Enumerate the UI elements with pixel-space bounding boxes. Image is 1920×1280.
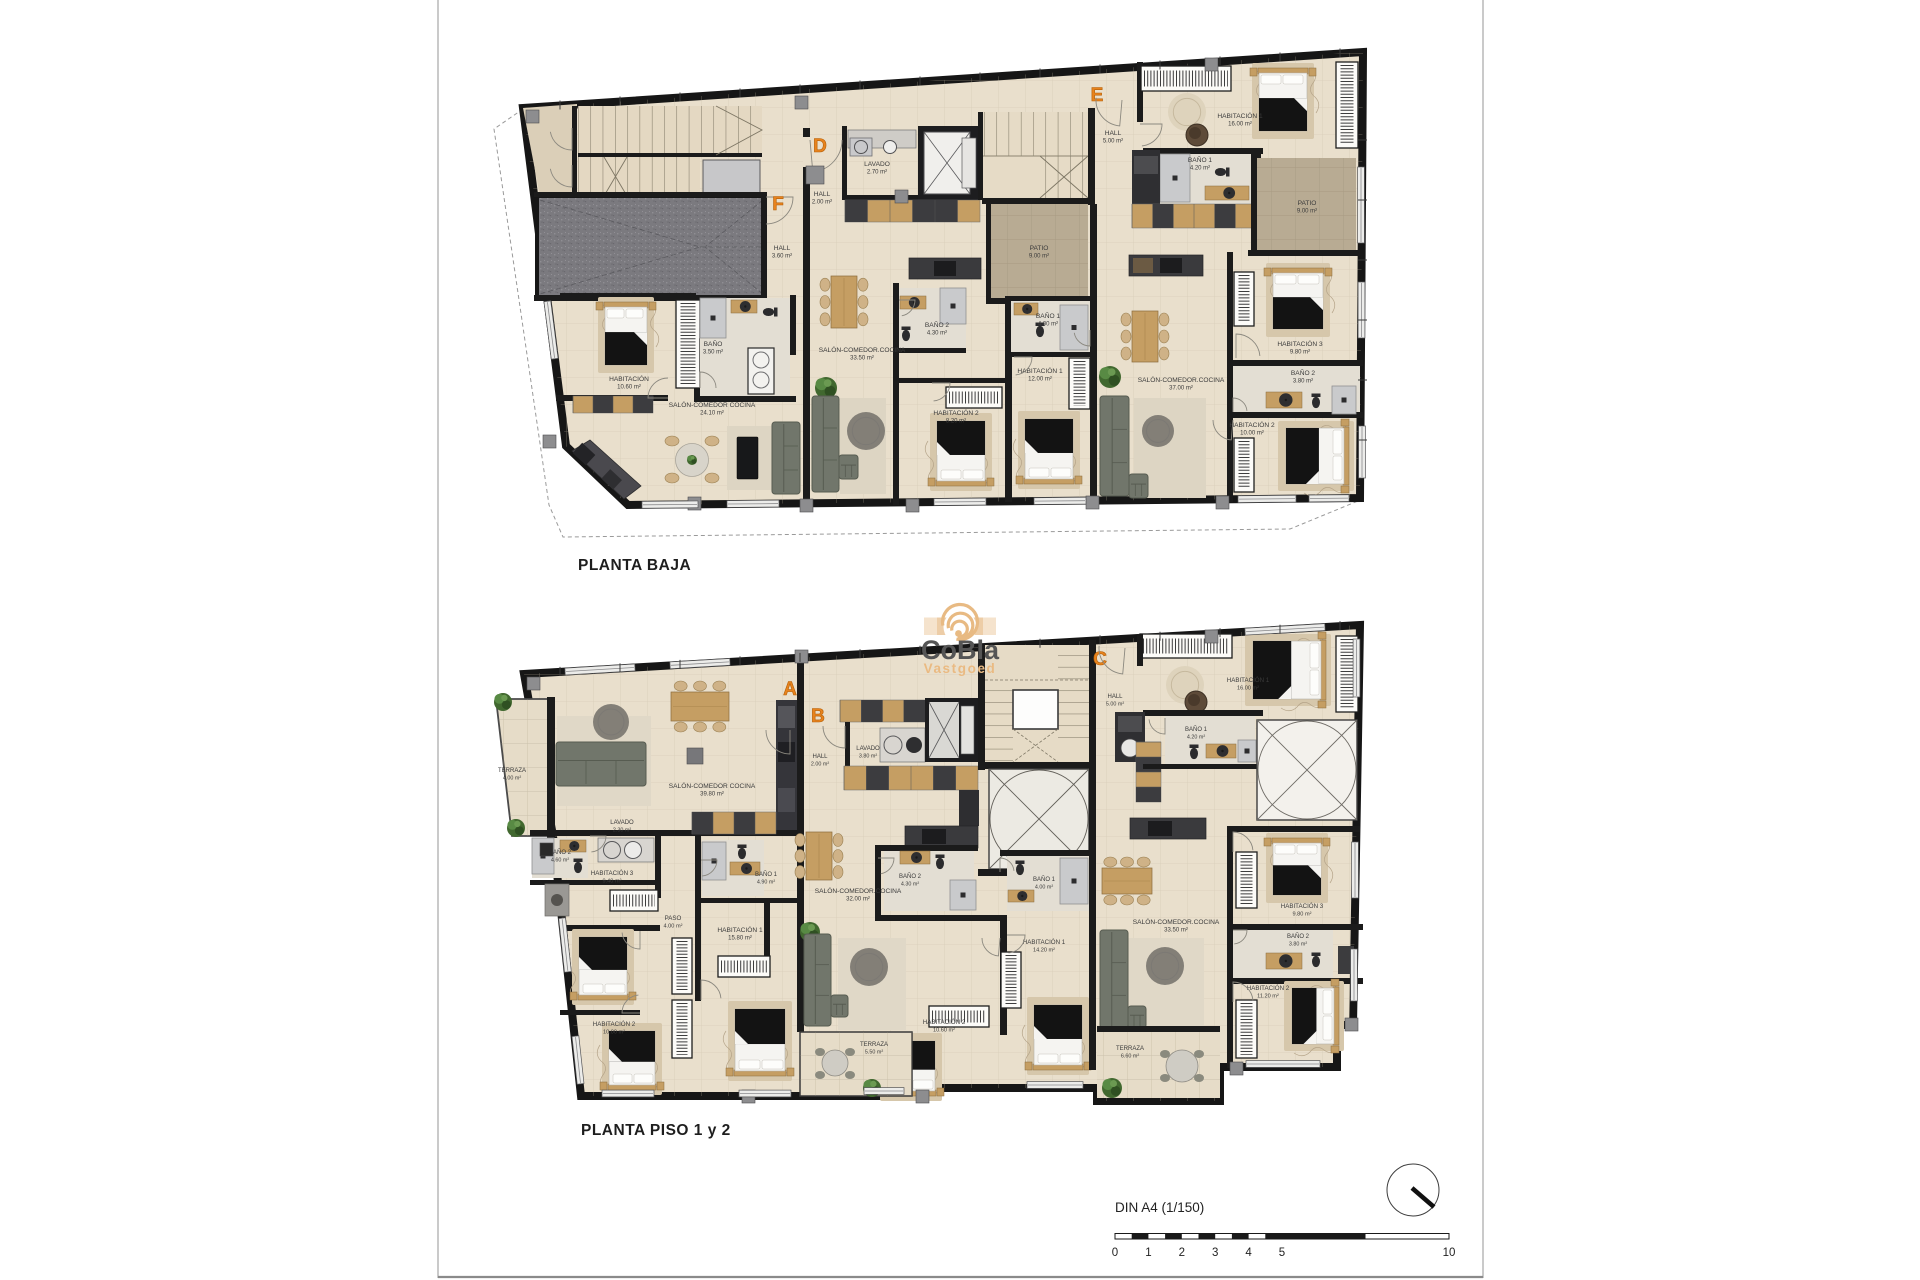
svg-text:BAÑO 2: BAÑO 2: [899, 873, 922, 880]
svg-text:3.80 m²: 3.80 m²: [1293, 379, 1313, 385]
svg-text:9.00 m²: 9.00 m²: [1297, 209, 1317, 215]
svg-text:PLANTA PISO 1 y 2: PLANTA PISO 1 y 2: [581, 1122, 731, 1139]
svg-text:33.50 m²: 33.50 m²: [1164, 928, 1188, 934]
svg-text:PATIO: PATIO: [1298, 200, 1317, 207]
svg-text:LAVADO: LAVADO: [864, 161, 890, 168]
svg-text:HALL: HALL: [812, 754, 828, 760]
svg-text:2.00 m²: 2.00 m²: [811, 762, 829, 768]
svg-text:14.20 m²: 14.20 m²: [1033, 948, 1055, 954]
svg-text:4.20 m²: 4.20 m²: [1190, 166, 1210, 172]
svg-text:5.00 m²: 5.00 m²: [1106, 702, 1124, 708]
svg-text:9.00 m²: 9.00 m²: [1029, 254, 1049, 260]
svg-text:HABITACIÓN 2: HABITACIÓN 2: [593, 1021, 636, 1028]
svg-text:SALÓN-COMEDOR.COCINA: SALÓN-COMEDOR.COCINA: [1133, 917, 1220, 926]
svg-text:TERRAZA: TERRAZA: [498, 768, 526, 774]
svg-text:4.30 m²: 4.30 m²: [927, 331, 947, 337]
svg-text:4.00 m²: 4.00 m²: [503, 776, 521, 782]
svg-text:4.30 m²: 4.30 m²: [901, 882, 919, 888]
svg-text:10.00 m²: 10.00 m²: [603, 1030, 625, 1036]
svg-text:HABITACIÓN 1: HABITACIÓN 1: [1217, 111, 1263, 120]
svg-text:LAVADO: LAVADO: [610, 820, 634, 826]
svg-text:9.80 m²: 9.80 m²: [1293, 912, 1312, 918]
svg-text:SALÓN-COMEDOR.COCINA: SALÓN-COMEDOR.COCINA: [1138, 375, 1225, 384]
svg-text:10.00 m²: 10.00 m²: [1240, 431, 1264, 437]
svg-text:4.60 m²: 4.60 m²: [551, 858, 569, 864]
svg-text:4.00 m²: 4.00 m²: [1035, 885, 1053, 891]
svg-text:BAÑO 1: BAÑO 1: [1185, 726, 1208, 733]
svg-text:BAÑO 1: BAÑO 1: [1188, 155, 1213, 164]
svg-text:C: C: [1093, 649, 1107, 670]
svg-text:24.10 m²: 24.10 m²: [700, 411, 724, 417]
svg-text:5.50 m²: 5.50 m²: [865, 1050, 883, 1056]
svg-text:9.80 m²: 9.80 m²: [1290, 350, 1310, 356]
svg-text:LAVADO: LAVADO: [856, 746, 880, 752]
svg-text:HABITACIÓN 3: HABITACIÓN 3: [591, 870, 634, 877]
svg-text:HALL: HALL: [1105, 130, 1122, 137]
svg-text:TERRAZA: TERRAZA: [860, 1042, 888, 1048]
svg-text:E: E: [1091, 85, 1104, 106]
svg-text:BAÑO 1: BAÑO 1: [1033, 876, 1056, 883]
svg-text:HABITACIÓN 3: HABITACIÓN 3: [1277, 339, 1323, 348]
svg-text:33.50 m²: 33.50 m²: [850, 356, 874, 362]
svg-text:B: B: [811, 706, 825, 727]
svg-text:10: 10: [1443, 1247, 1456, 1259]
svg-text:32.00 m²: 32.00 m²: [846, 897, 870, 903]
svg-text:5: 5: [1279, 1247, 1285, 1259]
svg-text:HABITACIÓN 1: HABITACIÓN 1: [1227, 677, 1270, 684]
svg-text:4.20 m²: 4.20 m²: [1187, 735, 1205, 741]
svg-text:F: F: [772, 194, 784, 215]
svg-text:BAÑO 2: BAÑO 2: [925, 320, 950, 329]
svg-text:HABITACIÓN 1: HABITACIÓN 1: [717, 925, 763, 934]
svg-text:9.40 m²: 9.40 m²: [603, 879, 622, 885]
svg-text:15.80 m²: 15.80 m²: [728, 936, 752, 942]
svg-text:PATIO: PATIO: [1030, 245, 1049, 252]
svg-text:6.60 m²: 6.60 m²: [1121, 1054, 1139, 1060]
svg-text:16.00 m²: 16.00 m²: [1228, 122, 1252, 128]
svg-text:HALL: HALL: [814, 191, 831, 198]
svg-text:SALÓN-COMEDOR COCINA: SALÓN-COMEDOR COCINA: [669, 781, 756, 790]
svg-text:HABITACIÓN 2: HABITACIÓN 2: [1229, 420, 1275, 429]
svg-text:3.60 m²: 3.60 m²: [772, 254, 792, 260]
svg-text:PLANTA BAJA: PLANTA BAJA: [578, 557, 691, 574]
svg-text:HABITACIÓN 2: HABITACIÓN 2: [933, 408, 979, 417]
svg-text:DIN A4 (1/150): DIN A4 (1/150): [1115, 1200, 1204, 1215]
svg-text:4.00 m²: 4.00 m²: [1038, 322, 1058, 328]
svg-text:2.70 m²: 2.70 m²: [867, 170, 887, 176]
svg-text:HABITACIÓN 2: HABITACIÓN 2: [923, 1019, 966, 1026]
svg-text:SALÓN-COMEDOR.COCINA: SALÓN-COMEDOR.COCINA: [819, 345, 906, 354]
svg-text:4.00 m²: 4.00 m²: [664, 924, 683, 930]
svg-text:16.00 m²: 16.00 m²: [1237, 686, 1259, 692]
svg-text:PASO: PASO: [665, 915, 682, 922]
svg-text:HABITACIÓN 1: HABITACIÓN 1: [1023, 939, 1066, 946]
svg-text:11.20 m²: 11.20 m²: [1257, 994, 1279, 1000]
svg-text:3.50 m²: 3.50 m²: [703, 350, 723, 356]
svg-text:A: A: [783, 679, 797, 700]
svg-text:2: 2: [1179, 1247, 1185, 1259]
svg-text:BAÑO 1: BAÑO 1: [1036, 311, 1061, 320]
svg-text:BAÑO 1: BAÑO 1: [755, 871, 778, 878]
svg-text:BAÑO 2: BAÑO 2: [1291, 368, 1316, 377]
svg-text:0: 0: [1112, 1247, 1118, 1259]
svg-text:5.00 m²: 5.00 m²: [1103, 139, 1123, 145]
svg-text:10.60 m²: 10.60 m²: [933, 1028, 955, 1034]
svg-text:HABITACIÓN 3: HABITACIÓN 3: [1281, 903, 1324, 910]
svg-text:4: 4: [1245, 1247, 1252, 1259]
svg-text:3.80 m²: 3.80 m²: [859, 754, 877, 760]
svg-text:BAÑO 2: BAÑO 2: [1287, 933, 1310, 940]
svg-text:4.90 m²: 4.90 m²: [757, 880, 775, 886]
svg-text:3.80 m²: 3.80 m²: [1289, 942, 1307, 948]
svg-text:Vastgoed: Vastgoed: [924, 661, 997, 676]
svg-text:BAÑO: BAÑO: [704, 339, 723, 348]
svg-text:2.00 m²: 2.00 m²: [812, 200, 832, 206]
svg-text:1: 1: [1145, 1247, 1151, 1259]
svg-text:HABITACIÓN: HABITACIÓN: [609, 374, 649, 383]
svg-text:D: D: [813, 136, 827, 157]
svg-text:12.00 m²: 12.00 m²: [1028, 377, 1052, 383]
svg-text:HALL: HALL: [1107, 694, 1123, 700]
svg-text:SALÓN-COMEDOR.COCINA: SALÓN-COMEDOR.COCINA: [815, 886, 902, 895]
svg-text:37.00 m²: 37.00 m²: [1169, 386, 1193, 392]
svg-text:TERRAZA: TERRAZA: [1116, 1046, 1144, 1052]
svg-text:8.20 m²: 8.20 m²: [946, 419, 966, 425]
svg-text:10.60 m²: 10.60 m²: [617, 385, 641, 391]
svg-text:HABITACIÓN 2: HABITACIÓN 2: [1247, 985, 1290, 992]
svg-text:SALÓN-COMEDOR COCINA: SALÓN-COMEDOR COCINA: [669, 400, 756, 409]
svg-text:3: 3: [1212, 1247, 1218, 1259]
svg-text:HALL: HALL: [774, 245, 791, 252]
svg-text:2.30 m²: 2.30 m²: [613, 828, 631, 834]
svg-text:HABITACIÓN 1: HABITACIÓN 1: [1017, 366, 1063, 375]
svg-text:39.80 m²: 39.80 m²: [700, 792, 724, 798]
